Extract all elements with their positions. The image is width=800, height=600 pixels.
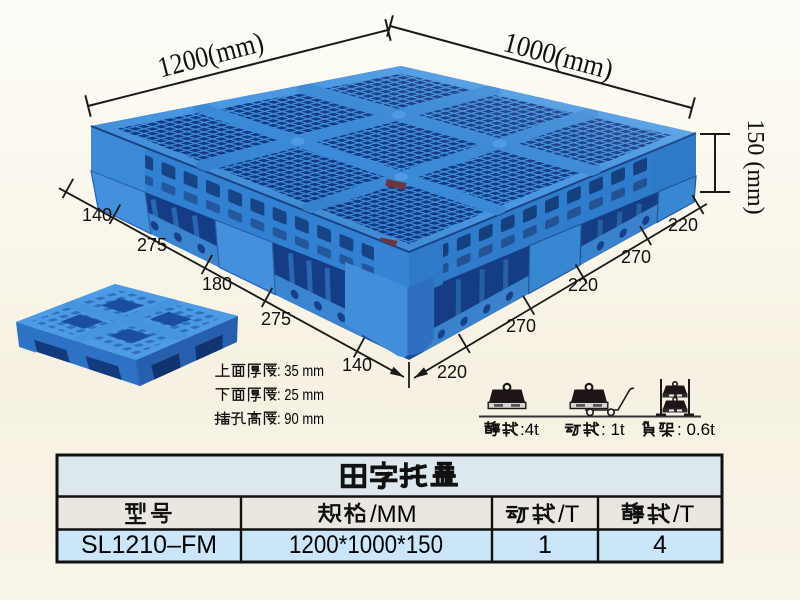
svg-text:/T: /T [558,501,580,528]
svg-text:/MM: /MM [370,501,417,528]
svg-text:: 0.6t: : 0.6t [677,420,715,439]
svg-text:1200*1000*150: 1200*1000*150 [289,531,443,559]
svg-text:1: 1 [538,531,552,559]
svg-text:140: 140 [82,205,112,225]
svg-text:270: 270 [621,247,651,267]
svg-text:: 25 mm: : 25 mm [277,387,324,404]
svg-text:180: 180 [202,274,232,294]
svg-text:4: 4 [653,531,667,559]
svg-text:: 1t: : 1t [601,420,625,439]
svg-text:275: 275 [261,309,291,329]
svg-text:: 35 mm: : 35 mm [277,363,324,380]
svg-text:220: 220 [668,215,698,235]
svg-text:140: 140 [342,355,372,375]
svg-text:220: 220 [437,362,467,382]
svg-text:270: 270 [506,316,536,336]
svg-text:: 90 mm: : 90 mm [277,411,324,428]
svg-text::4t: :4t [520,420,539,439]
svg-text:/T: /T [673,501,695,528]
svg-text:150 (mm): 150 (mm) [742,119,768,214]
svg-text:220: 220 [568,275,598,295]
svg-text:SL1210–FM: SL1210–FM [81,531,217,559]
svg-text:275: 275 [137,235,167,255]
